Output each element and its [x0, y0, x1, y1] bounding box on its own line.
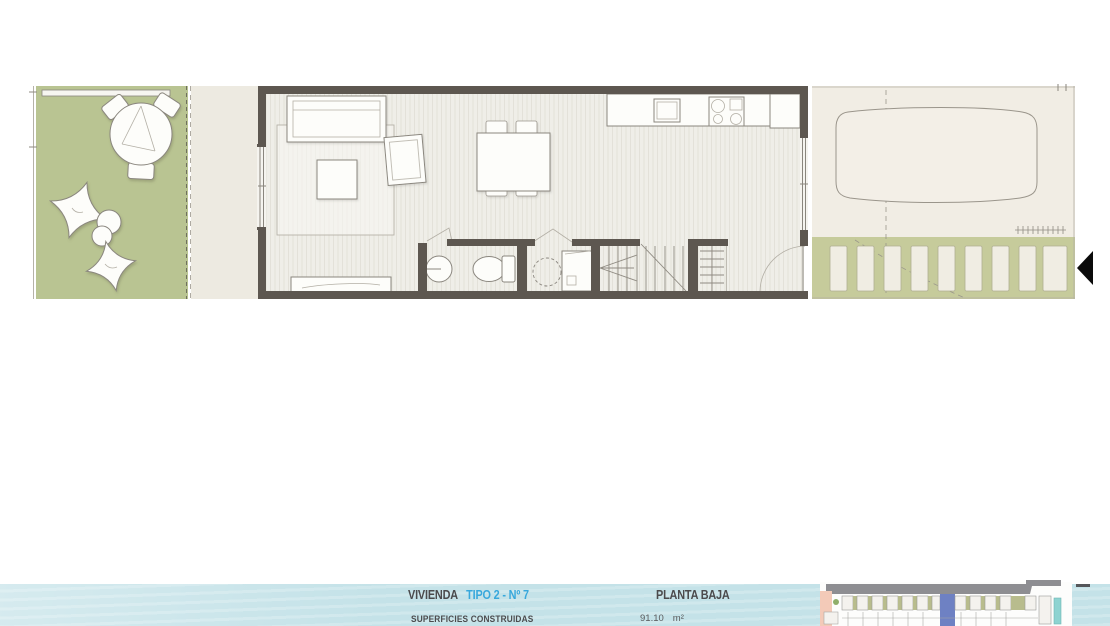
parking-area: [812, 84, 1075, 299]
car-outline: [836, 108, 1037, 203]
sliding-glass-door-left: [257, 144, 266, 230]
garden: [29, 86, 191, 299]
next-arrow[interactable]: [1077, 251, 1093, 285]
sofa: [287, 96, 386, 142]
washing-machine: [562, 251, 593, 291]
surface-number: 91.10: [640, 613, 664, 624]
washbasin: [426, 256, 452, 282]
footer: VIVIENDA TIPO 2 - Nº 7 PLANTA BAJA SUPER…: [0, 578, 1110, 626]
minimap-tree: [833, 599, 839, 605]
floorplan-svg: [0, 0, 1110, 578]
stepping-pavers: [830, 246, 1067, 291]
minimap-pool: [1054, 598, 1061, 624]
coffee-table: [317, 160, 357, 199]
surface-unit: m²: [673, 613, 684, 624]
glass-door-right: [800, 138, 808, 230]
surfaces-label: SUPERFICIES CONSTRUIDAS: [411, 614, 533, 624]
garden-wall: [42, 90, 170, 96]
dwelling-label: VIVIENDA: [408, 588, 458, 602]
dwelling-type: TIPO 2 - Nº 7: [466, 588, 529, 602]
site-minimap: [818, 578, 1110, 626]
terrace: [191, 86, 258, 299]
armchair: [384, 134, 426, 185]
house: [262, 90, 805, 295]
minimap-scale-dash: [1076, 584, 1090, 587]
toilet: [473, 256, 515, 282]
minimap-highlighted-unit: [940, 594, 955, 626]
floor-plan: [0, 0, 1110, 578]
fridge: [770, 94, 800, 128]
floor-title: PLANTA BAJA: [656, 588, 730, 602]
kitchen-counter: [607, 94, 800, 128]
dwelling-title: VIVIENDA TIPO 2 - Nº 7: [408, 588, 529, 602]
surface-value: 91.10m²: [640, 613, 684, 624]
